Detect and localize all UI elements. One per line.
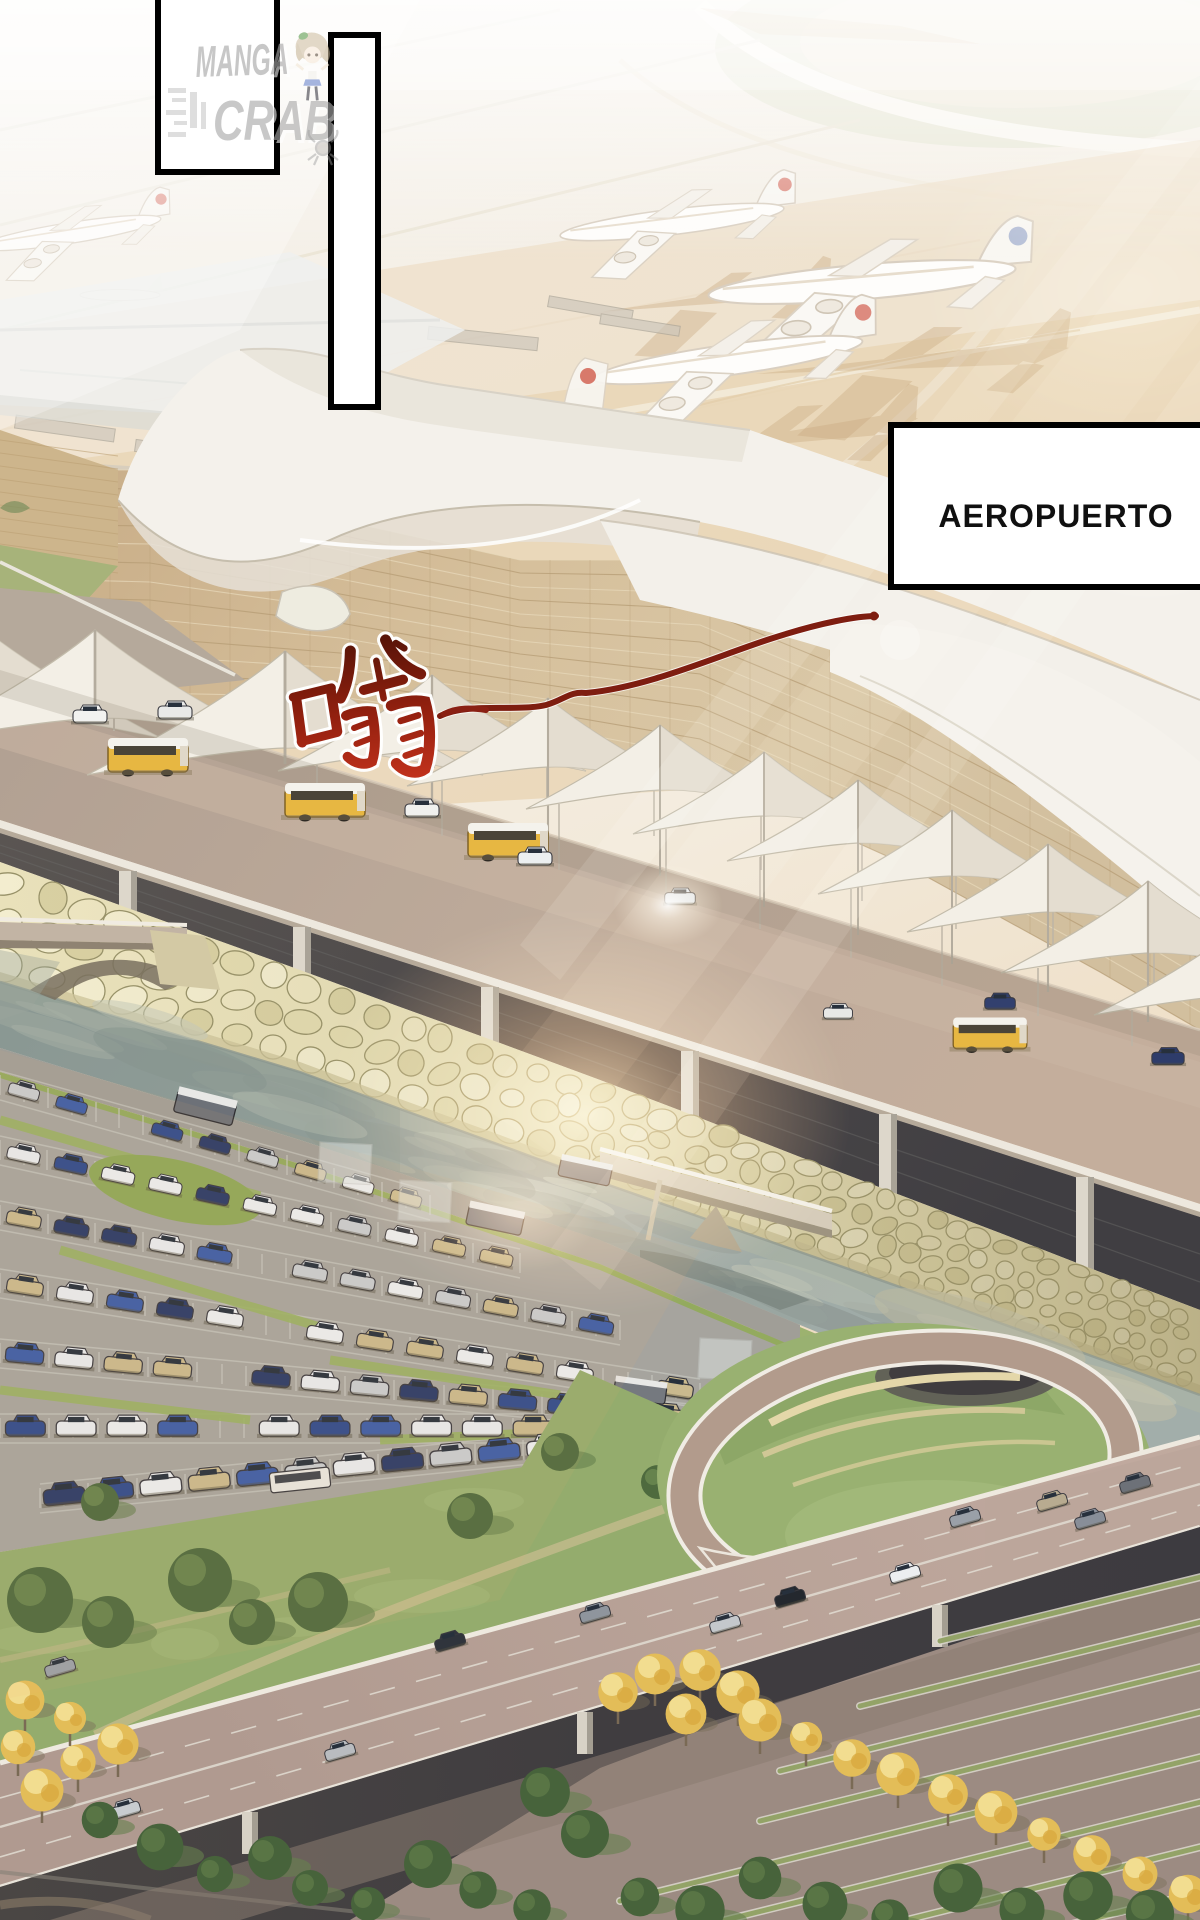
svg-text:MANGA: MANGA (195, 35, 290, 87)
svg-text:AEROPUERTO: AEROPUERTO (938, 498, 1173, 534)
